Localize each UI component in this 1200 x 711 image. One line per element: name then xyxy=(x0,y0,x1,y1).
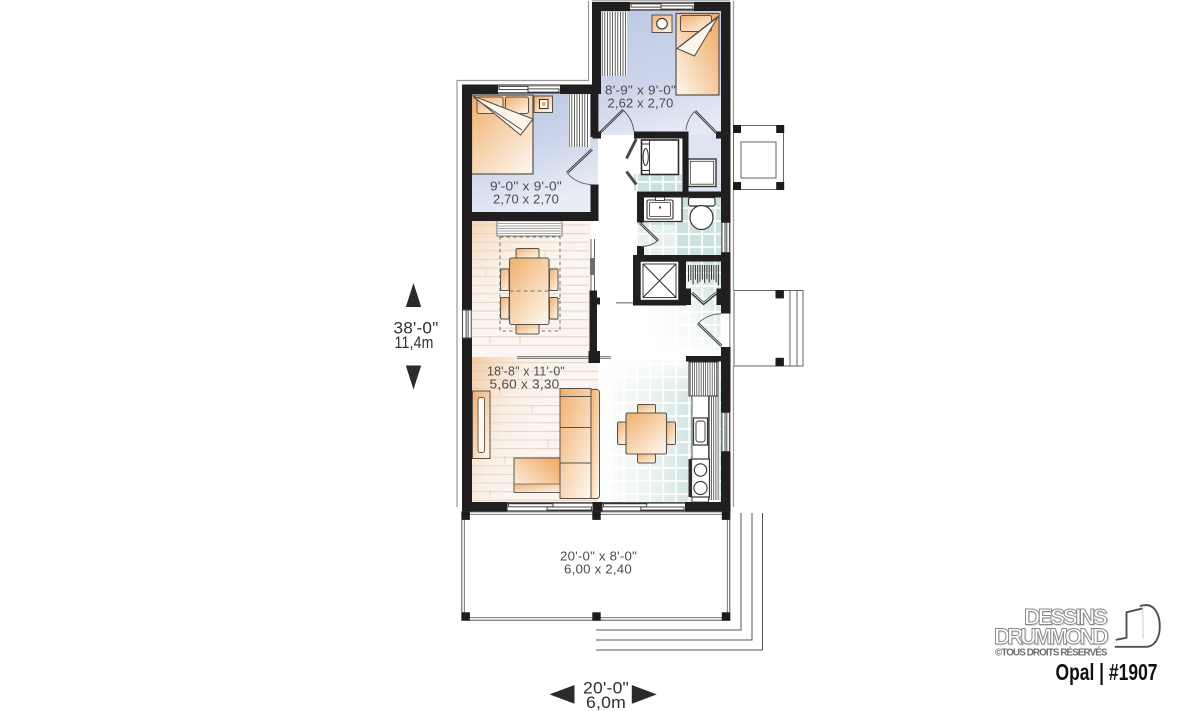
svg-text:©TOUS DROITS RÉSERVÉS: ©TOUS DROITS RÉSERVÉS xyxy=(995,647,1108,659)
svg-text:11,4m: 11,4m xyxy=(395,334,434,352)
svg-text:6,0m: 6,0m xyxy=(586,693,626,711)
svg-text:5,60 x 3,30: 5,60 x 3,30 xyxy=(490,377,560,392)
svg-text:6,00 x 2,40: 6,00 x 2,40 xyxy=(564,562,632,577)
svg-text:DRUMMOND: DRUMMOND xyxy=(994,624,1110,649)
svg-text:Opal | #1907: Opal | #1907 xyxy=(1056,659,1158,685)
svg-text:2,62 x 2,70: 2,62 x 2,70 xyxy=(608,96,674,111)
svg-text:2,70 x 2,70: 2,70 x 2,70 xyxy=(493,192,559,207)
